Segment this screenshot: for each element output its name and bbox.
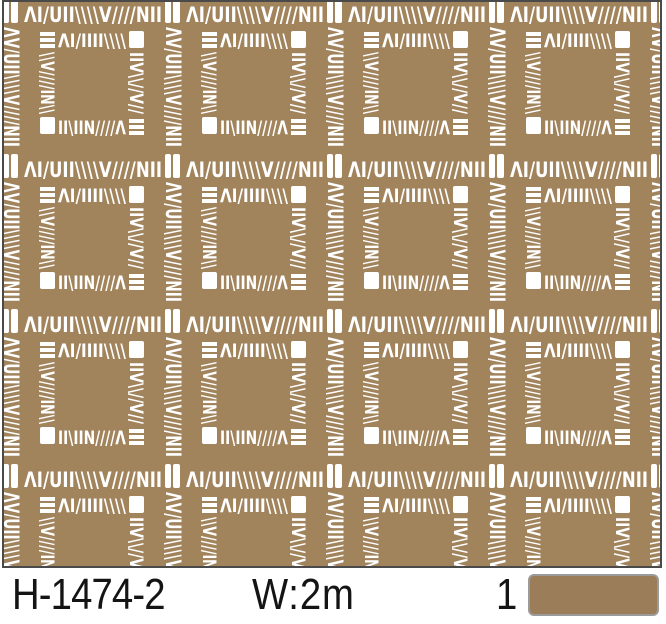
pattern-swatch-image: ΛI/UII\\\\V////NII ΛV/UII\\\\V////NII ΛI… (2, 0, 662, 568)
color-swatch (528, 574, 659, 616)
quantity-label: 1 (496, 569, 516, 621)
label-strip: H-1474-2 W:2m 1 (0, 568, 666, 624)
product-swatch-card: ΛI/UII\\\\V////NII ΛV/UII\\\\V////NII ΛI… (0, 0, 666, 624)
pattern-svg: ΛI/UII\\\\V////NII ΛV/UII\\\\V////NII ΛI… (4, 2, 660, 566)
pattern-fill (4, 2, 660, 566)
product-code: H-1474-2 (12, 569, 165, 621)
width-label: W:2m (252, 569, 355, 621)
